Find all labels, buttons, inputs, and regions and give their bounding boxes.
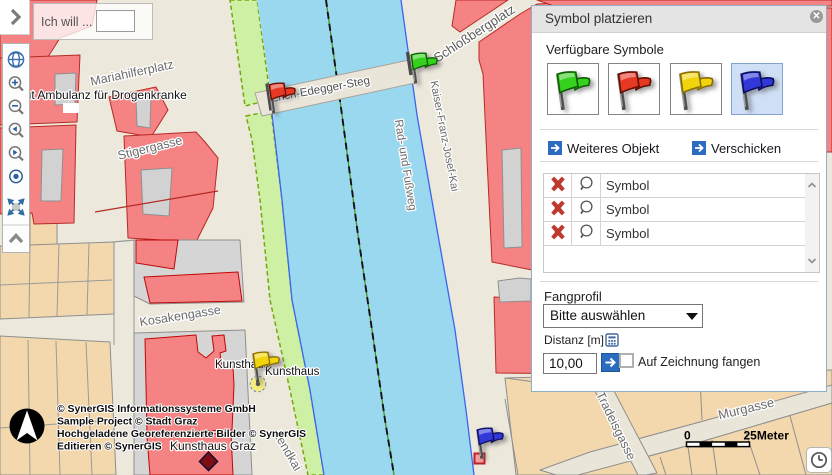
svg-text:© SynerGIS Informationssysteme: © SynerGIS Informationssysteme GmbH <box>57 404 256 415</box>
svg-text:Kunsthaus Graz: Kunsthaus Graz <box>170 439 256 453</box>
svg-text:Editieren © SynerGIS: Editieren © SynerGIS <box>57 442 162 453</box>
svg-text:Sample Project © Stadt Graz: Sample Project © Stadt Graz <box>57 417 197 428</box>
svg-text:out Ambulanz für Drogenkranke: out Ambulanz für Drogenkranke <box>18 88 187 102</box>
svg-text:25Meter: 25Meter <box>744 429 790 443</box>
svg-text:Kunsthaus: Kunsthaus <box>265 366 320 378</box>
svg-text:Hochgeladene Georeferenzierte: Hochgeladene Georeferenzierte Bilder © S… <box>57 429 306 440</box>
svg-text:0: 0 <box>684 429 691 443</box>
